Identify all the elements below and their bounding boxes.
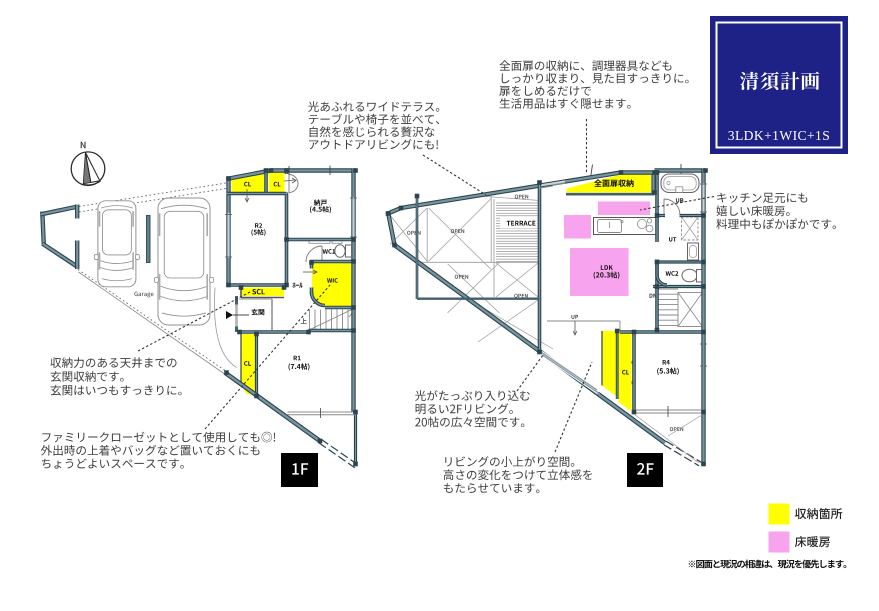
svg-text:3LDK+1WIC+1S: 3LDK+1WIC+1S [728, 128, 830, 143]
